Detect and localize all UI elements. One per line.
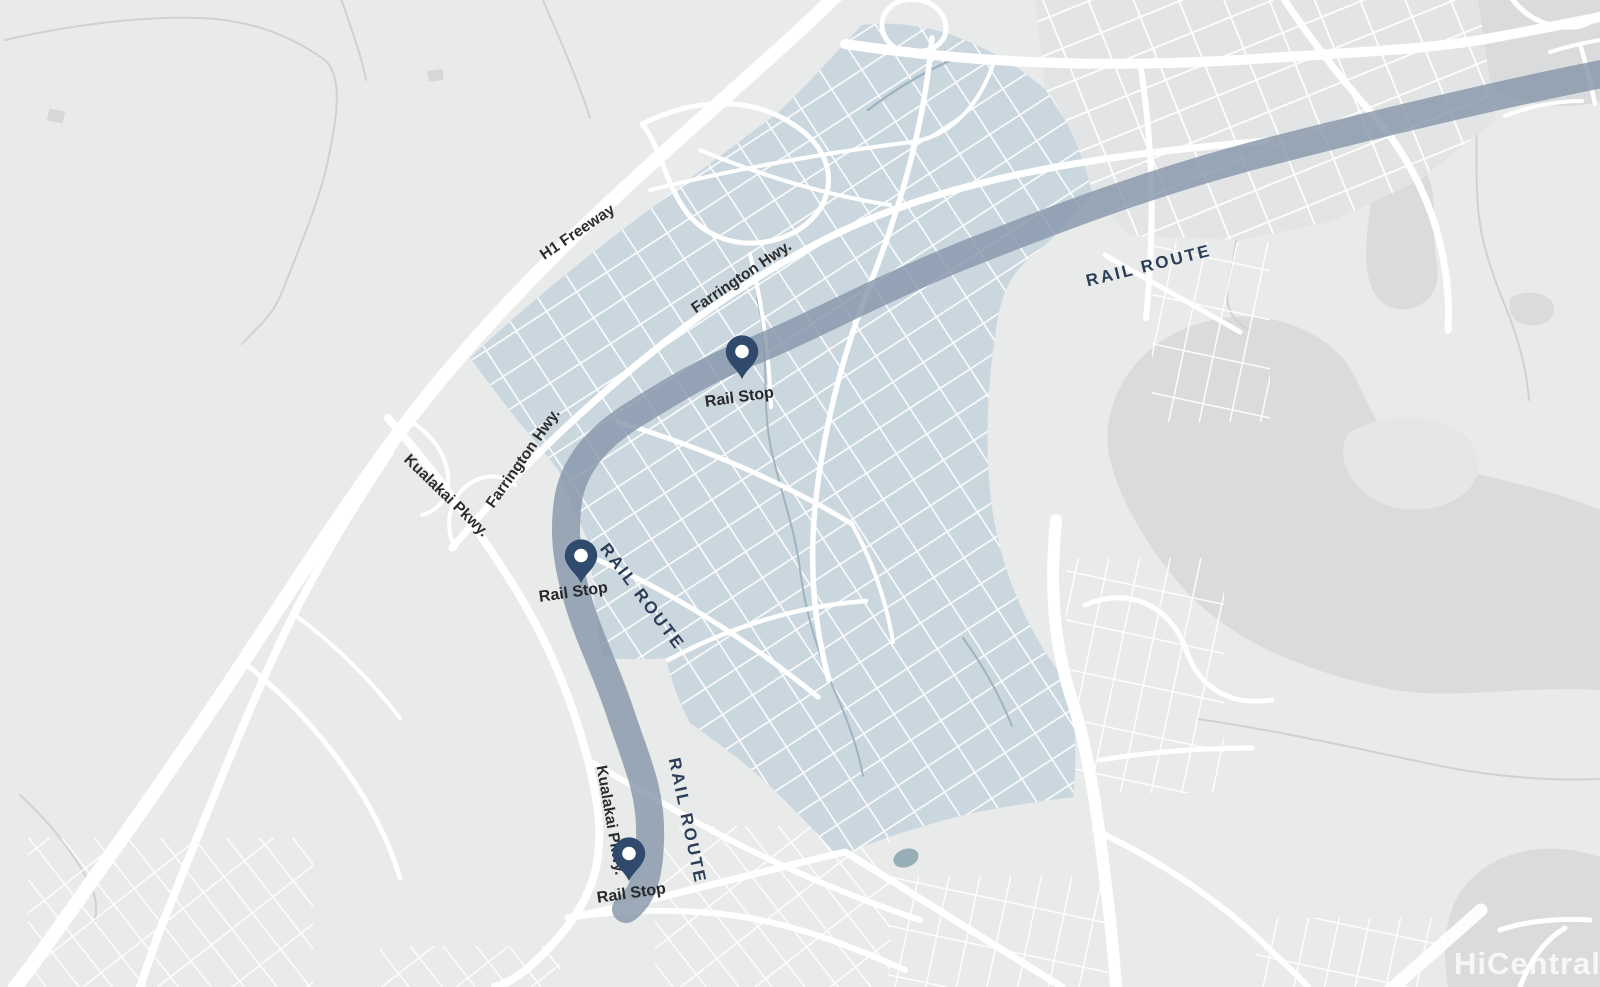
- map-canvas: H1 Freeway Farrington Hwy. Farrington Hw…: [0, 0, 1600, 987]
- building-block-2: [427, 69, 443, 82]
- watermark-text: HiCentralMLS: [1454, 946, 1600, 981]
- pin-center-dot: [622, 847, 636, 861]
- pin-center-dot: [574, 549, 588, 563]
- map-image: H1 Freeway Farrington Hwy. Farrington Hw…: [0, 0, 1600, 987]
- pin-center-dot: [735, 345, 749, 359]
